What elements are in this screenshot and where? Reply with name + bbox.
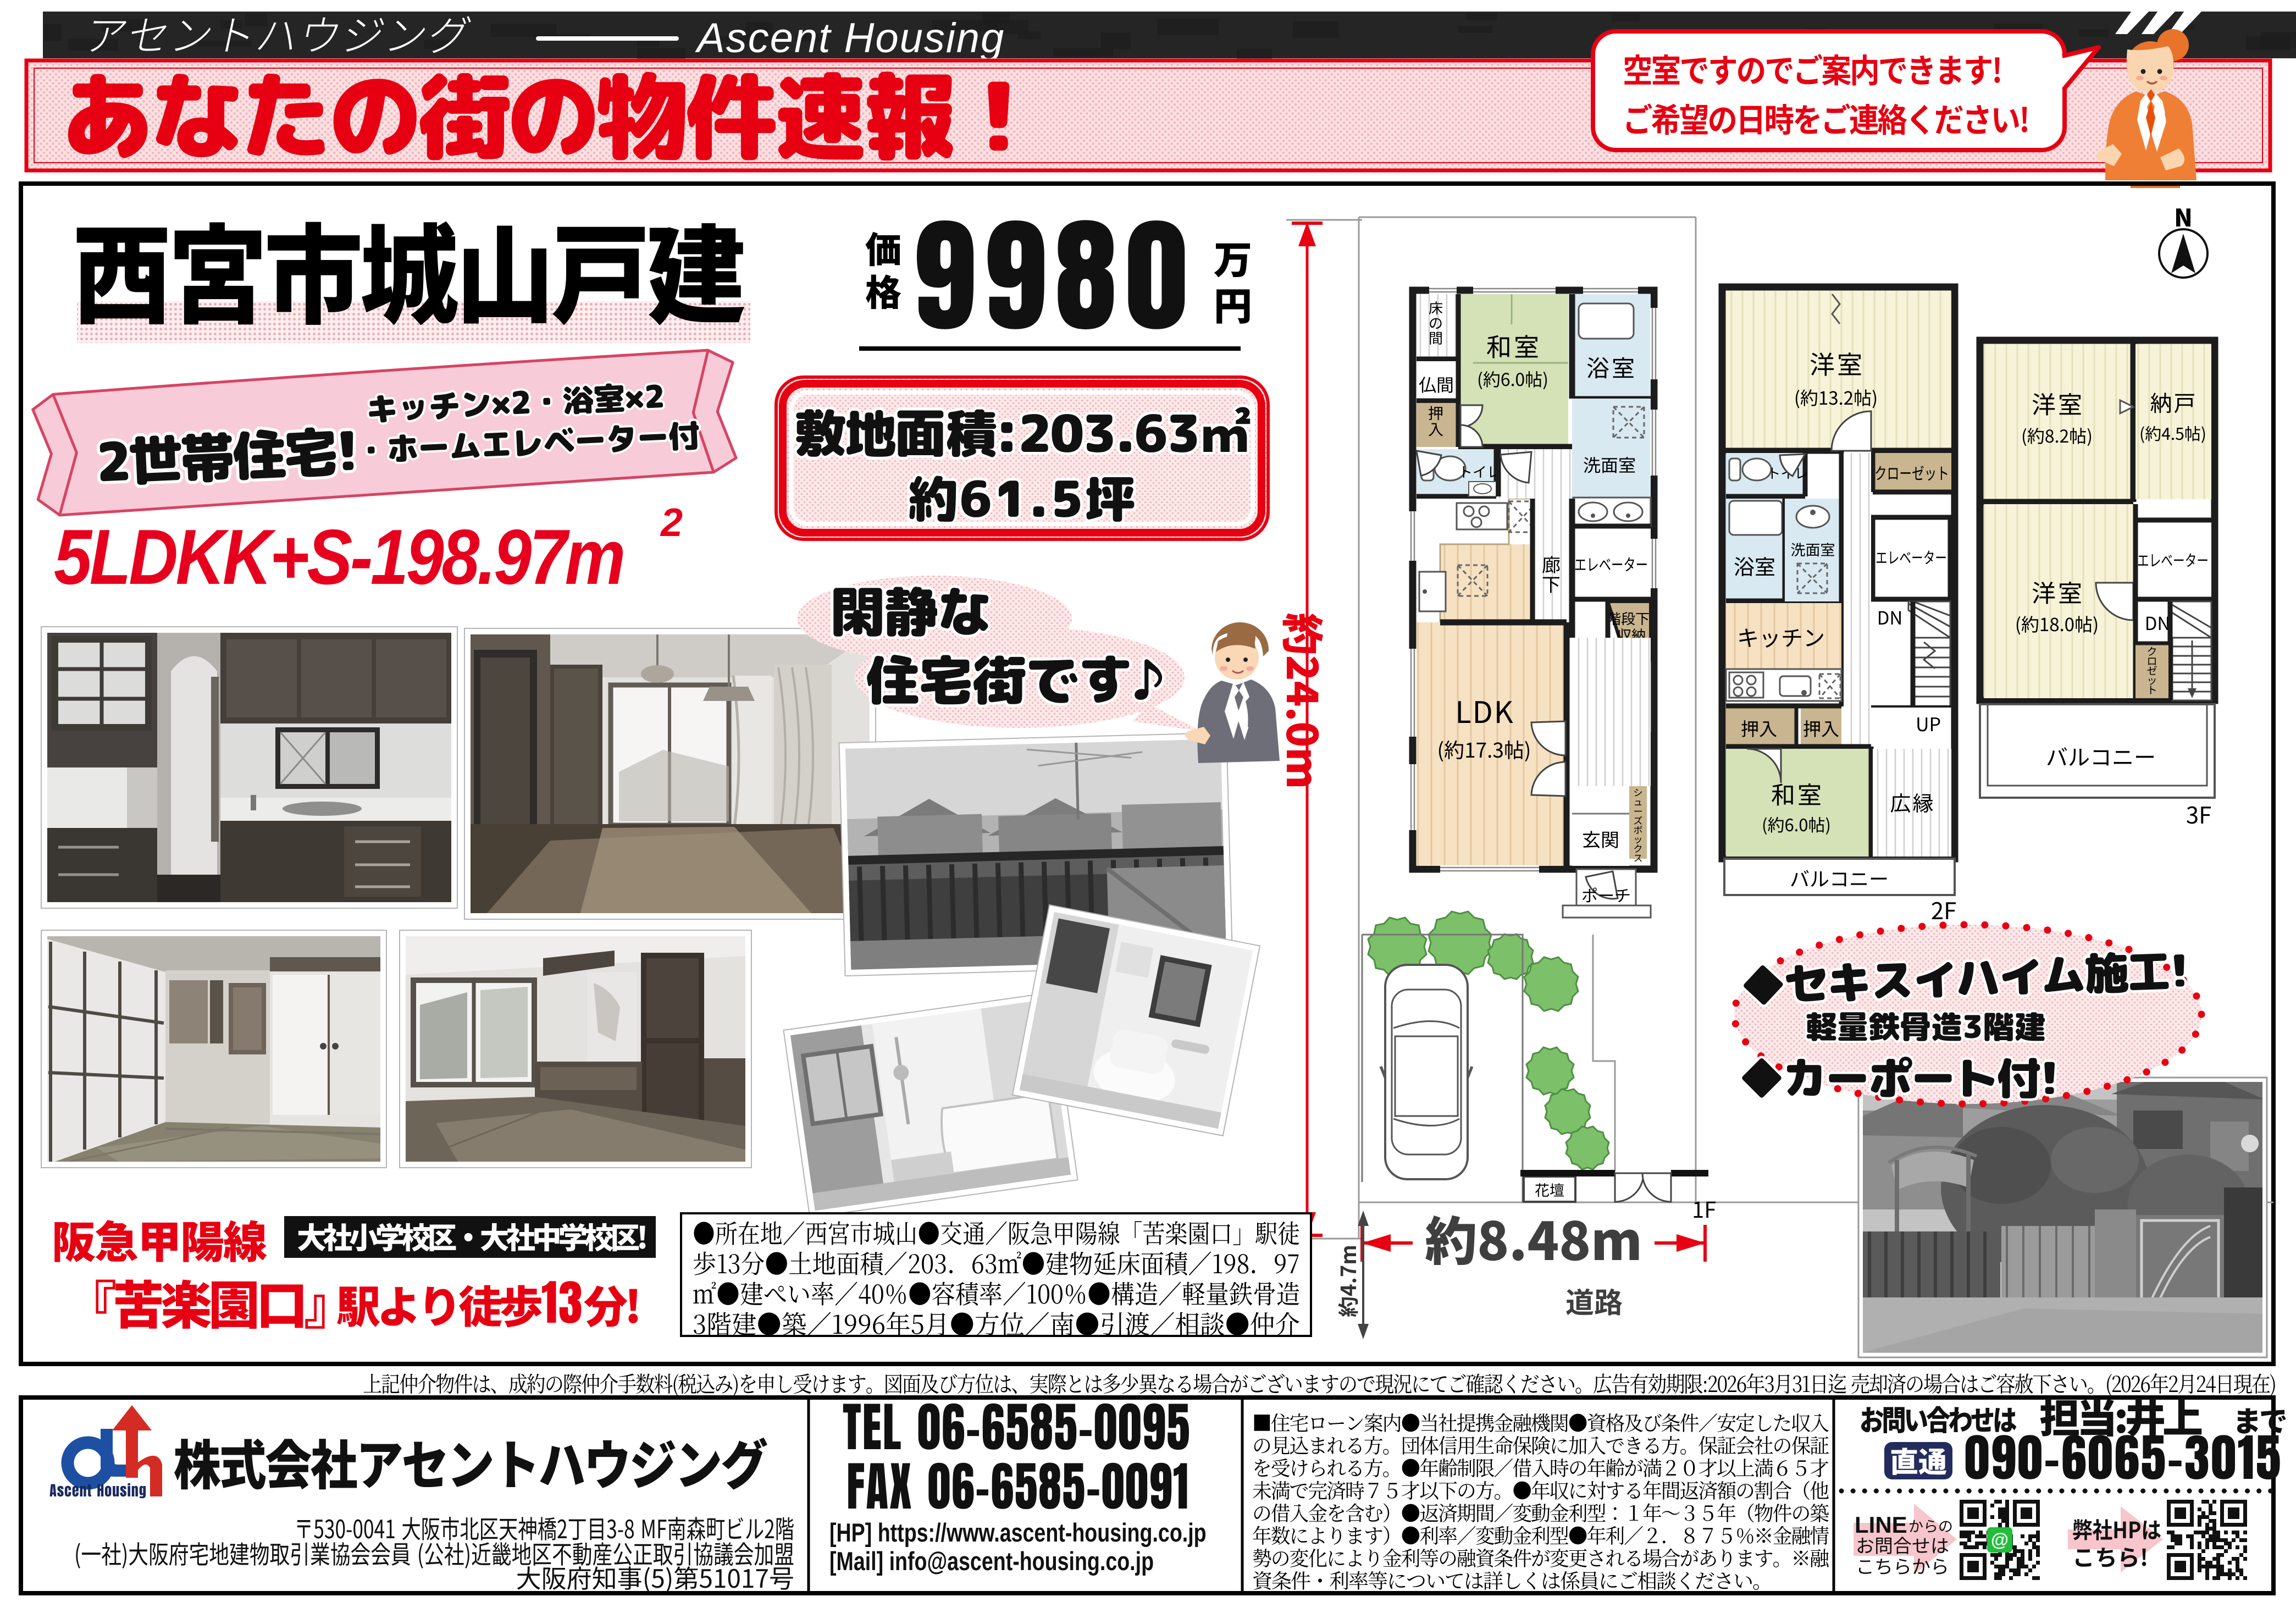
svg-text:2: 2: [660, 501, 683, 545]
svg-text:5LDKK+S-198.97m: 5LDKK+S-198.97m: [54, 513, 623, 601]
svg-text:@: @: [1991, 1529, 2009, 1550]
svg-text:Ascent Housing: Ascent Housing: [695, 15, 1005, 62]
svg-text:[Mail] info@ascent-housing.co.: [Mail] info@ascent-housing.co.jp: [829, 1547, 1154, 1576]
svg-text:LINE: LINE: [1855, 1512, 1907, 1538]
svg-text:[HP] https://www.ascent-housin: [HP] https://www.ascent-housing.co.jp: [829, 1518, 1207, 1548]
